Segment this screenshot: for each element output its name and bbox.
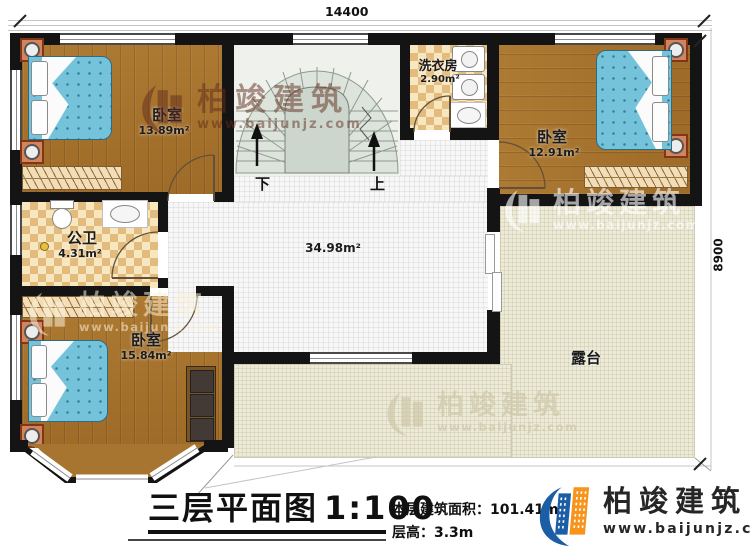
floor-height-line: 层高：3.3m [392,526,473,540]
room-label: 公卫 [67,231,97,246]
room-area-label: 4.31m² [58,248,101,259]
floor-area-label: 本层建筑面积： [392,502,490,518]
floor-height-label: 层高： [392,525,434,541]
room-area-label: 13.89m² [138,125,189,136]
logo-name: 柏竣建筑 [603,487,747,516]
plan-title-text: 三层平面图 [148,489,318,527]
logo-icon [537,481,599,547]
logo-url: www.baijunjz.com [603,522,750,536]
room-area-label: 34.98m² [305,242,361,254]
stair-up-label: 上 [370,177,385,192]
room-area-label: 15.84m² [120,350,171,361]
stair-down-label: 下 [255,177,270,192]
room-area-label: 2.90m² [420,75,459,85]
room-area-label: 12.91m² [528,147,579,158]
room-label: 卧室 [537,130,567,145]
floor-height-value: 3.3m [434,525,473,541]
floor-plan-sheet: 14400 [0,0,750,552]
room-label: 洗衣房 [418,60,457,73]
room-label: 卧室 [131,333,161,348]
dimension-right-label: 8900 [712,238,726,271]
title-underline-thin [128,539,386,541]
room-label: 露台 [571,351,601,366]
title-underline-thick [148,530,386,534]
room-label: 卧室 [152,108,182,123]
plan-overlay [0,0,750,552]
